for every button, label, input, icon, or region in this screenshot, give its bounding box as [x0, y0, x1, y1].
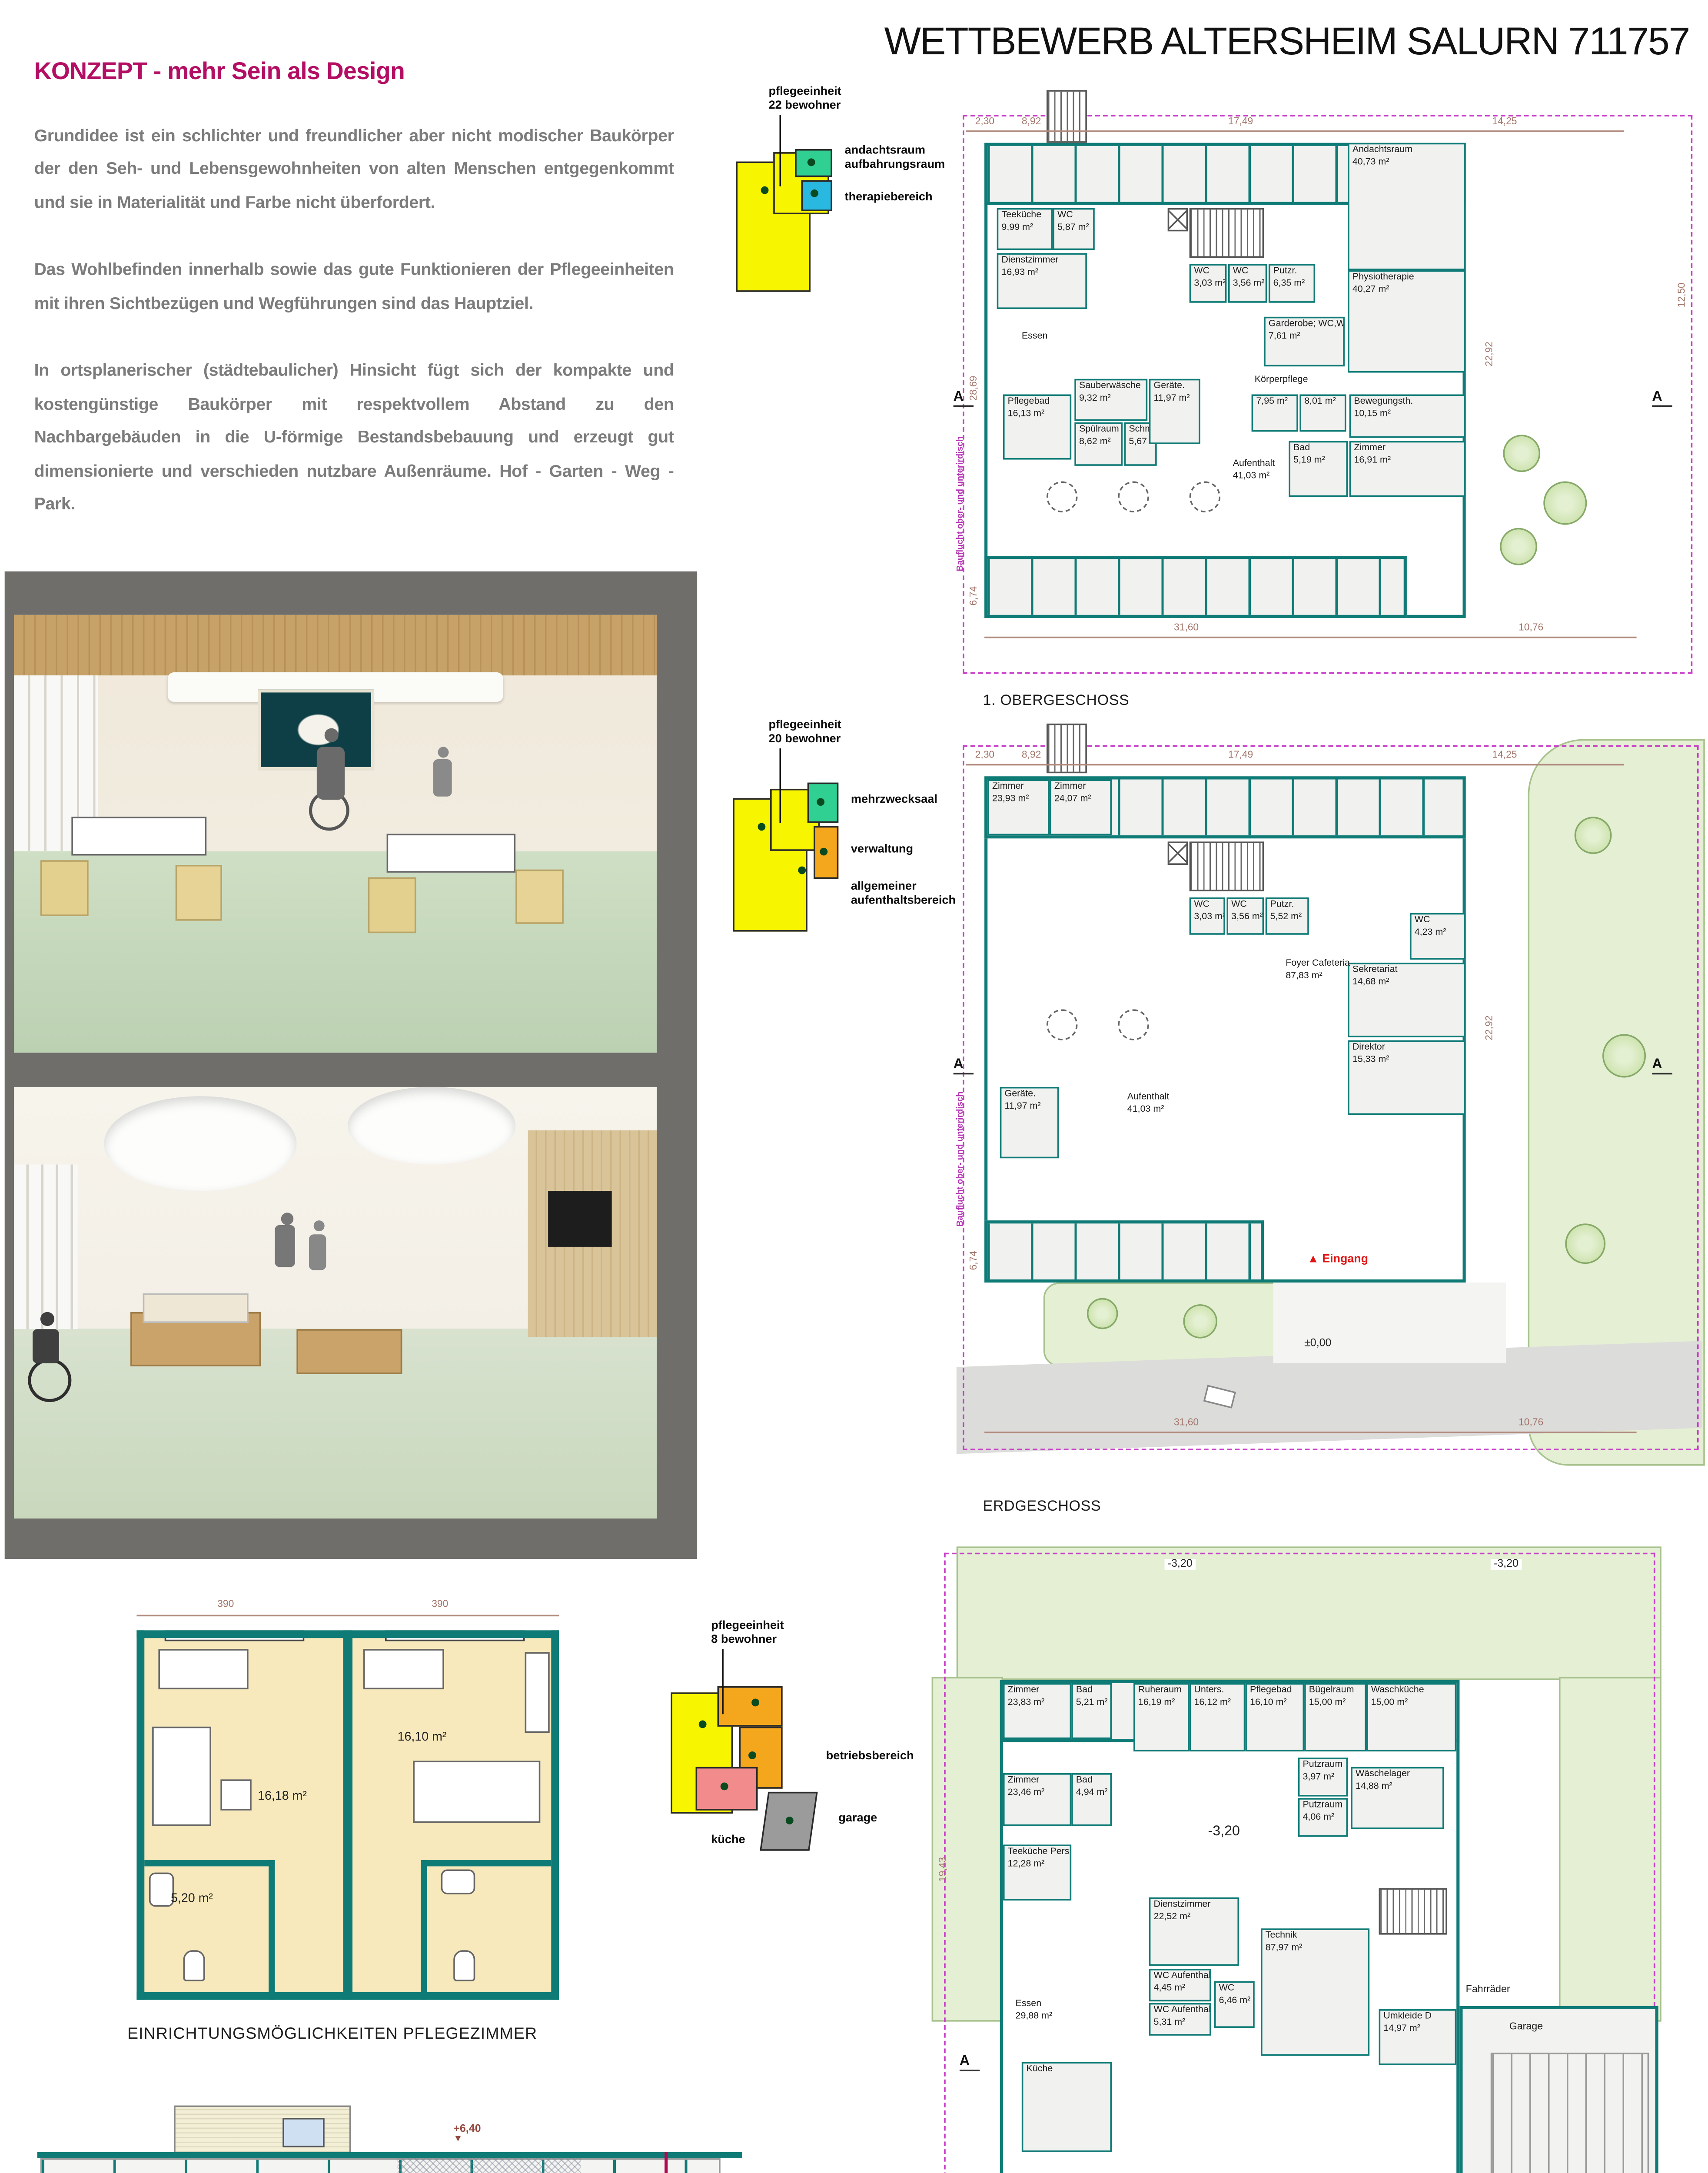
dim-label: 10,76 [1519, 1418, 1543, 1429]
poster-sheet: WETTBEWERB ALTERSHEIM SALURN 711757 KONZ… [0, 0, 1708, 2173]
plan-caption-first-floor: 1. OBERGESCHOSS [983, 692, 1130, 709]
legend-label: aufenthaltsbereich [851, 894, 956, 908]
room-label: Essen29,88 m² [1016, 2000, 1053, 2024]
table [158, 1649, 248, 1689]
round-table [1190, 482, 1220, 512]
stair-core [1379, 1888, 1447, 1934]
wall-artwork [258, 689, 374, 770]
wall [421, 1860, 427, 2000]
room-label: Putzraum3,97 m² [1298, 1758, 1348, 1796]
wall [136, 1630, 144, 2000]
room-label: 7,95 m² [1252, 394, 1298, 432]
washbasin [441, 1870, 475, 1894]
tree-icon [1543, 482, 1587, 525]
tree-icon [1503, 435, 1540, 472]
legend-dot [798, 867, 806, 874]
person-wheelchair-silhouette [33, 1329, 60, 1363]
parking-stalls [1491, 2053, 1649, 2173]
entrance-text: Eingang [1322, 1252, 1368, 1266]
wardrobe [525, 1652, 550, 1733]
keyplan-unit-line: 8 bewohner [711, 1633, 784, 1648]
concept-paragraph: Das Wohlbefinden innerhalb sowie das gut… [34, 255, 674, 322]
bed [152, 1727, 211, 1826]
dim-label: 31,60 [1174, 623, 1199, 634]
washbasin [149, 1873, 174, 1907]
plan-basement: -3,20 -3,20 Zimmer23,83 m² Bad5,21 m² Ru… [932, 1540, 1708, 2173]
room-label: Bad5,19 m² [1289, 441, 1348, 497]
dim-label: 2,30 [975, 116, 994, 127]
room-label: Wäschelager14,88 m² [1351, 1767, 1444, 1829]
dim-label: 19,43 [938, 1857, 949, 1882]
window-wall [14, 1165, 78, 1329]
tree-icon [1602, 1034, 1646, 1077]
person-silhouette [275, 1225, 295, 1267]
legend-dot [758, 823, 765, 831]
level-text: +6,40 [453, 2124, 481, 2135]
legend-item: allgemeiner aufenthaltsbereich [851, 879, 956, 908]
wall [144, 1860, 275, 1866]
keyplan-unit-label: pflegeeinheit 8 bewohner [711, 1618, 784, 1648]
stair-core [1190, 208, 1264, 258]
room-area-label: 5,20 m² [171, 1891, 213, 1905]
section-marker: A [1652, 388, 1672, 407]
dim-label: 8,92 [1022, 116, 1041, 127]
dim-label: 390 [217, 1599, 234, 1610]
legend-item: betriebsbereich [826, 1748, 914, 1763]
room-label: Unters.16,12 m² [1190, 1683, 1246, 1751]
room-label: Sekretariat14,68 m² [1348, 963, 1466, 1037]
dim-label: 14,25 [1492, 116, 1517, 127]
bicycles-label: Fahrräder [1466, 1984, 1510, 1995]
elevator [1168, 841, 1188, 865]
room-label: Andachtsraum40,73 m² [1348, 143, 1466, 270]
legend-dot [748, 1751, 756, 1759]
legend-dot [761, 186, 769, 194]
room-label: WC5,87 m² [1053, 208, 1094, 250]
dimension-line [966, 764, 1624, 765]
room-label: Pflegebad16,13 m² [1003, 394, 1071, 459]
entrance-label: ▲ Eingang [1307, 1252, 1368, 1266]
legend-dot [699, 1721, 707, 1728]
room-label: Essen [1022, 332, 1048, 345]
legend-item: verwaltung [851, 841, 913, 856]
rooftop-volume [174, 2106, 351, 2158]
garage-area: Garage [1459, 2006, 1658, 2173]
section-marker: A [954, 388, 974, 407]
dim-label: 6,74 [969, 1251, 980, 1270]
plan-ground-floor: 2,30 8,92 17,49 14,25 Zimmer23,93 m² Zim… [957, 730, 1708, 1491]
person-silhouette [309, 1234, 326, 1269]
room-label: Waschküche15,00 m² [1366, 1683, 1456, 1751]
room-label: Teeküche Pers.12,28 m² [1003, 1844, 1071, 1901]
room-label: Zimmer16,91 m² [1349, 441, 1466, 497]
page-title: WETTBEWERB ALTERSHEIM SALURN 711757 [884, 20, 1690, 65]
room-label: Umkleide D14,97 m² [1379, 2009, 1457, 2065]
dim-label: 390 [432, 1599, 448, 1610]
room-label: WC3,56 m² [1228, 264, 1267, 302]
interior-render-2 [14, 1087, 657, 1518]
keyplan-operations-shape [718, 1686, 783, 1727]
room-label: Putzr.6,35 m² [1269, 264, 1315, 302]
legend-label: betriebsbereich [826, 1748, 914, 1763]
legend-label: mehrzwecksaal [851, 792, 937, 807]
dim-label: 6,74 [969, 586, 980, 605]
tree-icon [1183, 1304, 1217, 1339]
keyplan-ground-floor: pflegeeinheit 20 bewohner mehrzwecksaal … [727, 718, 990, 966]
plan-first-floor: 2,30 8,92 17,49 14,25 ±3,20 Teeküche9,99… [957, 90, 1705, 695]
dining-table [387, 834, 515, 874]
entrance-triangle-icon: ▲ [1307, 1252, 1319, 1266]
dining-table [72, 816, 207, 856]
room-label: Teeküche9,99 m² [997, 208, 1053, 250]
person-silhouette [281, 1212, 293, 1225]
facade-screen [398, 2158, 581, 2173]
nightstand [220, 1779, 251, 1810]
building-line-note: Bauflucht ober- und unterirdisch [957, 436, 966, 571]
room-band-south [984, 1220, 1264, 1283]
chair [175, 864, 223, 920]
dimension-line [984, 637, 1637, 638]
room-label: WC Aufenthalt D4,45 m² [1149, 1969, 1211, 2001]
concept-paragraph: Grundidee ist ein schlichter und freundl… [34, 121, 674, 221]
room-label: Direktor15,33 m² [1348, 1040, 1466, 1115]
level-label: -3,20 [1491, 1559, 1522, 1570]
room-label: WC3,56 m² [1226, 897, 1264, 935]
person-silhouette [434, 759, 452, 797]
dim-label: 8,92 [1022, 750, 1041, 761]
round-table [1118, 1009, 1149, 1040]
accent-line [665, 2152, 668, 2173]
room-label: Zimmer23,93 m² [987, 779, 1050, 835]
tree-icon [1087, 1298, 1118, 1329]
wall [551, 1630, 559, 2000]
exterior-stair [1047, 90, 1087, 143]
legend-dot [751, 1699, 759, 1707]
dim-label: 10,76 [1519, 623, 1543, 634]
room-label: Pflegebad16,10 m² [1245, 1683, 1304, 1751]
rooftop-window [283, 2118, 325, 2147]
wall [421, 1860, 551, 1866]
room-area-label: 16,10 m² [398, 1730, 447, 1744]
dim-label: 14,25 [1492, 750, 1517, 761]
wall [343, 1630, 352, 2000]
room-area-label: 16,18 m² [258, 1789, 307, 1803]
room-label: Foyer Cafeteria87,83 m² [1286, 960, 1350, 984]
concept-paragraph: In ortsplanerischer (städtebaulicher) Hi… [34, 356, 674, 522]
room-label: Geräte.11,97 m² [1149, 379, 1200, 444]
dim-label: 22,92 [1485, 342, 1495, 366]
level-label: -3,20 [1165, 1559, 1196, 1570]
legend-label: andachtsraum [845, 143, 945, 158]
plan-caption-ground-floor: ERDGESCHOSS [983, 1499, 1101, 1515]
toilet [453, 1950, 475, 1981]
dim-label: 22,92 [1485, 1016, 1495, 1040]
board-scaler: WETTBEWERB ALTERSHEIM SALURN 711757 KONZ… [0, 0, 1708, 2173]
legend-label: aufbahrungsraum [845, 158, 945, 173]
legend-dot [786, 1817, 794, 1824]
legend-item: therapiebereich [845, 189, 933, 204]
legend-label: allgemeiner [851, 879, 956, 894]
entrance-plaza [1273, 1283, 1506, 1363]
wheelchair-wheel [28, 1359, 72, 1402]
room-label: Bügelraum15,00 m² [1304, 1683, 1366, 1751]
room-label: Aufenthalt41,03 m² [1127, 1093, 1170, 1117]
room-label: Küche [1022, 2062, 1112, 2152]
keyplan-unit-line: pflegeeinheit [768, 718, 841, 732]
chair [40, 860, 88, 916]
room-label: WC3,03 m² [1190, 264, 1227, 302]
round-table [1118, 482, 1149, 512]
legend-item: mehrzwecksaal [851, 792, 937, 807]
legend-item: andachtsraum aufbahrungsraum [845, 143, 945, 173]
room-label: Sauberwäsche9,32 m² [1074, 379, 1147, 421]
wood-ceiling [14, 615, 657, 676]
legend-item: küche [711, 1832, 745, 1847]
dimension-line [966, 130, 1624, 131]
room-label: WC Aufenthalt H5,31 m² [1149, 2003, 1211, 2036]
chair [515, 869, 564, 924]
interior-render-1 [14, 615, 657, 1053]
roof-slab [37, 2152, 742, 2158]
room-label: Bewegungsth.10,15 m² [1349, 394, 1466, 438]
room-label: Bad5,21 m² [1071, 1683, 1112, 1739]
keyplan-basement: pflegeeinheit 8 bewohner betriebsbereich… [665, 1618, 944, 1882]
legend-label: therapiebereich [845, 189, 933, 204]
room-label: Geräte.11,97 m² [1000, 1087, 1059, 1158]
leader-line [779, 748, 781, 823]
legend-dot [807, 158, 815, 166]
room-label: 8,01 m² [1299, 394, 1346, 432]
person-wheelchair-silhouette [316, 746, 344, 799]
care-room-pair: 16,18 m² 5,20 m² 16,10 m² [136, 1630, 559, 2000]
room-label: Dienstzimmer16,93 m² [997, 253, 1087, 309]
furnishing-caption: EINRICHTUNGSMÖGLICHKEITEN PFLEGEZIMMER [127, 2025, 537, 2043]
dim-label: 17,49 [1228, 116, 1253, 127]
leader-line [722, 1649, 724, 1714]
room-label: Körperpflege [1255, 376, 1308, 388]
room-label: Spülraum8,62 m² [1074, 422, 1123, 466]
room-label: Technik87,97 m² [1261, 1928, 1369, 2056]
elevator [1168, 208, 1188, 232]
building-line-note: Bauflucht ober- und unterirdisch [957, 1092, 966, 1227]
section-marker: A [1652, 1056, 1672, 1074]
concept-block: KONZEPT - mehr Sein als Design Grundidee… [34, 59, 674, 522]
dim-label: 12,50 [1677, 282, 1688, 307]
bed [413, 1761, 540, 1823]
sofa [363, 1649, 444, 1689]
exterior-stair [1047, 724, 1087, 773]
room-label: WC6,46 m² [1214, 1981, 1255, 2028]
dimension-line [136, 1615, 559, 1616]
room-label: Garderobe; WC,Waschb.7,61 m² [1264, 317, 1345, 366]
room-label: WC4,23 m² [1410, 913, 1466, 960]
legend-label: verwaltung [851, 841, 913, 856]
room-label: Physiotherapie40,27 m² [1348, 270, 1466, 373]
keyplan-unit-line: 22 bewohner [768, 99, 841, 113]
tv-screen [548, 1190, 612, 1246]
leader-line [779, 115, 781, 186]
stair-core [1190, 841, 1264, 891]
person-silhouette [438, 746, 449, 757]
ceiling-cutout [348, 1087, 515, 1165]
section-marker: A [960, 2053, 980, 2071]
room-label: Bad4,94 m² [1071, 1773, 1112, 1826]
level-label: +6,40 ▼ [453, 2124, 481, 2144]
room-label: Putzraum4,06 m² [1298, 1798, 1348, 1837]
section-drawing: +6,40 ▼ ±0,00=16,20 ▼ -3,20 ▼ -4,47 ▼ 27… [37, 2121, 835, 2173]
wall [269, 1860, 275, 2000]
render-panel [5, 571, 697, 1559]
keyplan-first-floor: pflegeeinheit 22 bewohner andachtsraum a… [727, 81, 975, 314]
room-label: Zimmer23,46 m² [1003, 1773, 1071, 1826]
concept-heading: KONZEPT - mehr Sein als Design [34, 59, 674, 87]
tree-icon [1575, 817, 1612, 854]
legend-item: garage [838, 1811, 877, 1825]
level-label: -3,20 [1208, 1823, 1240, 1838]
room-label: Putzr.5,52 m² [1266, 897, 1309, 935]
garage-label: Garage [1509, 2022, 1543, 2033]
room-band-south [984, 556, 1407, 618]
room-label: WC3,03 m² [1190, 897, 1225, 935]
furnishing-plans: 390 390 16,18 m² 5,20 m² [121, 1596, 587, 2019]
chair [368, 877, 416, 933]
bench-cushion [143, 1294, 249, 1323]
legend-label: garage [838, 1811, 877, 1825]
round-table [1047, 482, 1077, 512]
upper-floor [40, 2158, 721, 2173]
section-marker: A [954, 1056, 974, 1074]
toilet [183, 1950, 205, 1981]
dim-label: 31,60 [1174, 1418, 1199, 1429]
keyplan-unit-line: pflegeeinheit [711, 1618, 784, 1633]
level-label: ±0,00 [1304, 1339, 1331, 1349]
level-triangle-icon: ▼ [453, 2135, 481, 2144]
keyplan-unit-line: 20 bewohner [768, 732, 841, 747]
legend-dot [721, 1782, 728, 1790]
tree-icon [1565, 1223, 1605, 1264]
legend-dot [820, 848, 827, 856]
room-label: Zimmer23,83 m² [1003, 1683, 1071, 1739]
legend-label: küche [711, 1832, 745, 1847]
room-label: Zimmer24,07 m² [1050, 779, 1112, 835]
keyplan-unit-label: pflegeeinheit 22 bewohner [768, 84, 841, 113]
wood-bench [297, 1329, 403, 1375]
room-label: Ruheraum16,19 m² [1133, 1683, 1190, 1751]
legend-dot [817, 798, 824, 806]
keyplan-unit-line: pflegeeinheit [768, 84, 841, 99]
room-label: Aufenthalt41,03 m² [1233, 460, 1275, 484]
tree-icon [1500, 528, 1537, 565]
dim-label: 2,30 [975, 750, 994, 761]
room-label: Dienstzimmer22,52 m² [1149, 1897, 1239, 1966]
person-silhouette [313, 1221, 324, 1232]
keyplan-unit-label: pflegeeinheit 20 bewohner [768, 718, 841, 747]
dimension-line [984, 1432, 1637, 1432]
round-table [1047, 1009, 1077, 1040]
legend-dot [811, 189, 818, 197]
dim-label: 17,49 [1228, 750, 1253, 761]
ceiling-cutout [104, 1096, 297, 1190]
